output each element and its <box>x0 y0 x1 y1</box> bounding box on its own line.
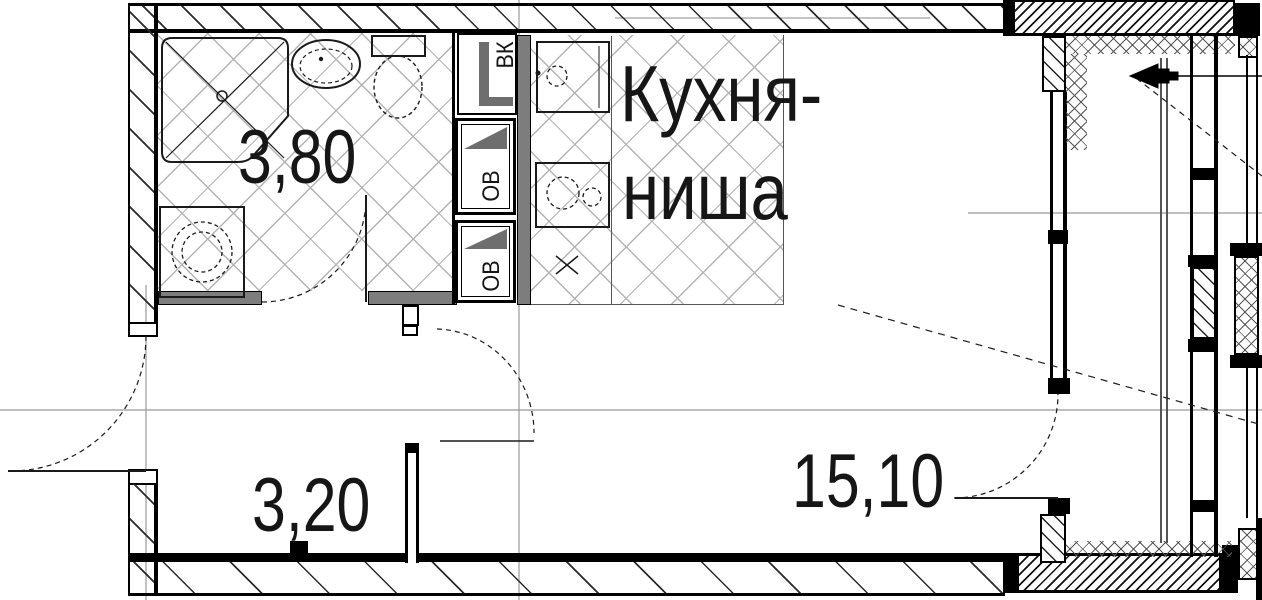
facade-glazing-lower <box>1246 357 1258 518</box>
insulation-band-left <box>1066 54 1087 150</box>
glazing-mullion-4 <box>1190 500 1218 512</box>
glazing-pier-mid <box>1192 267 1216 339</box>
facade-pier <box>1234 256 1259 355</box>
floor-plan: 3,80 Кухня- ниша 3,20 15,10 ВК ОВ ОВ <box>0 0 1262 600</box>
shaft-ov-top-label: ОВ <box>481 166 503 206</box>
hall-door-stub <box>402 305 419 326</box>
balcony-pier-bottom <box>1040 514 1066 563</box>
facade-pier-cap-bottom <box>1230 355 1262 368</box>
glazing-mullion-3 <box>1188 339 1218 352</box>
entry-door-jamb-top <box>128 322 158 337</box>
hallway-area-label: 3,20 <box>252 468 370 544</box>
room-area-label: 15,10 <box>792 444 944 520</box>
glazing-mullion-2 <box>1188 255 1218 267</box>
bathroom-wall-right-segment <box>368 291 457 305</box>
shaft-vk-label: ВК <box>495 35 517 75</box>
vk-duct-profile-horizontal <box>479 97 513 106</box>
facade-pier-cap-top <box>1230 243 1262 256</box>
entry-door-jamb-bottom <box>128 469 158 485</box>
hallway-partition <box>405 443 419 563</box>
wall-top <box>128 3 1003 33</box>
kitchen-name-line1: Кухня- <box>620 54 822 134</box>
balcony-door-jamb-top <box>1048 378 1070 394</box>
balcony-pier-top <box>1042 36 1066 92</box>
kitchen-name-line2: ниша <box>622 152 788 232</box>
corner-block-top-right <box>1235 3 1260 36</box>
direction-arrow-icon <box>1130 64 1262 88</box>
facade-edge-bottom <box>1256 518 1262 600</box>
kitchen-niche-bottom-edge <box>531 304 784 305</box>
hall-door <box>437 329 534 441</box>
corner-insulation-bottom-right <box>1238 528 1258 580</box>
insulation-band-top <box>1066 36 1235 54</box>
window-opening-leader-top <box>1136 78 1262 176</box>
shaft-ov-bottom-label: ОВ <box>481 256 503 296</box>
bathroom-wall-left-segment <box>158 291 262 305</box>
bathroom-area-label: 3,80 <box>238 120 356 196</box>
balcony-door-jamb-bottom <box>1048 498 1070 514</box>
kitchen-partition-wall <box>517 35 531 305</box>
kitchen-counter-edge <box>611 36 612 304</box>
wall-left-upper <box>128 3 158 323</box>
wall-top-right-dense <box>1013 0 1235 36</box>
balcony-door <box>954 394 1058 498</box>
insulation-band-bottom <box>1066 541 1232 557</box>
glazing-mullion-1 <box>1190 168 1218 180</box>
wall-bottom <box>128 553 1005 596</box>
balcony-rail-line-2 <box>1166 58 1168 543</box>
entrance-door <box>8 336 146 471</box>
wall-bottom-cap <box>1003 553 1016 593</box>
hall-door-stub-cap <box>402 325 418 336</box>
facade-glazing-upper <box>1246 55 1258 255</box>
balcony-window-mullion <box>1048 230 1068 244</box>
balcony-rail-line-1 <box>1160 58 1162 543</box>
